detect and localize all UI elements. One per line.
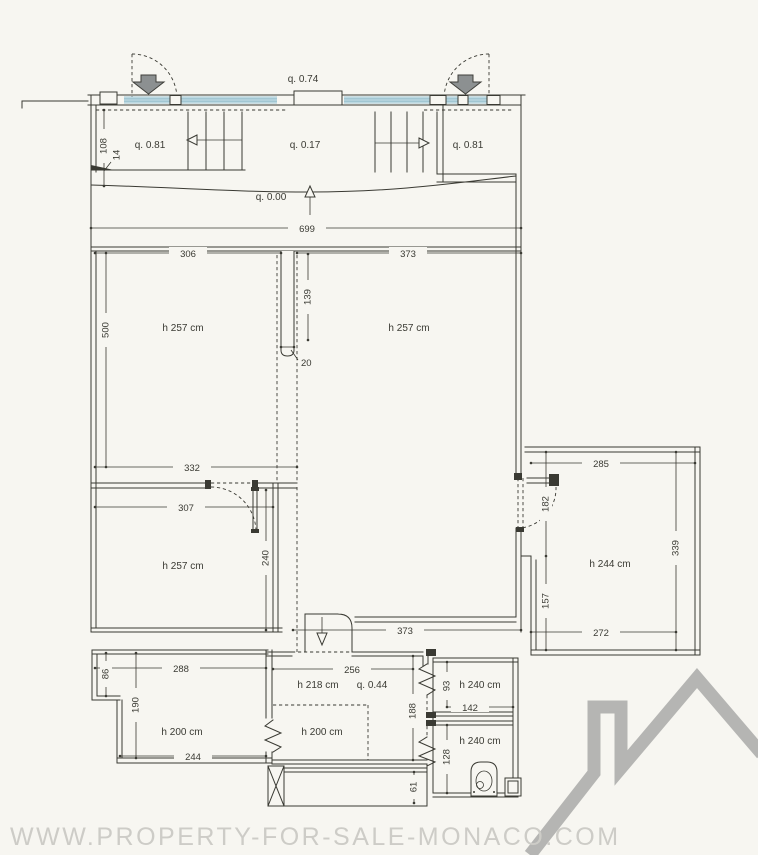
dim-128: 128 (442, 749, 453, 765)
room-bedroom-right: h 244 cm (589, 559, 630, 570)
dim-139: 139 (303, 289, 314, 305)
window-glazing (124, 97, 170, 104)
dim-182: 182 (541, 496, 552, 512)
dim-285: 285 (593, 459, 609, 470)
dim-86: 86 (101, 669, 112, 680)
pillar (281, 251, 294, 356)
room-bedroom-left: h 257 cm (162, 561, 203, 572)
room-lower-left: h 200 cm (161, 727, 202, 738)
window-glazing (468, 97, 487, 104)
dim-339: 339 (671, 540, 682, 556)
dim-373-top: 373 (400, 249, 416, 260)
dim-699: 699 (299, 224, 315, 235)
wall-fixture-icon (505, 778, 521, 796)
terrace-door-opening (294, 91, 342, 105)
dim-108: 108 (99, 138, 110, 154)
window-mullion (458, 96, 468, 105)
window-glazing (446, 97, 458, 104)
dim-14: 14 (112, 150, 123, 161)
dim-332: 332 (184, 463, 200, 474)
level-landing-right: q. 0.81 (453, 140, 484, 151)
room-living-right: h 257 cm (388, 323, 429, 334)
wall-pier (100, 92, 117, 104)
paper-background (0, 0, 758, 855)
dim-500: 500 (101, 322, 112, 338)
window-glazing (344, 97, 430, 104)
dim-244: 244 (185, 752, 201, 763)
window-glazing (181, 97, 277, 104)
floor-plan-canvas: 699 306 373 500 139 20 332 307 240 373 2… (0, 0, 758, 855)
dim-256: 256 (344, 665, 360, 676)
dim-240: 240 (261, 550, 272, 566)
dim-61: 61 (409, 782, 420, 793)
dim-20: 20 (301, 358, 312, 369)
level-terrace: q. 0.74 (288, 74, 319, 85)
dim-157: 157 (541, 593, 552, 609)
dim-190: 190 (131, 697, 142, 713)
level-landing-left: q. 0.81 (135, 140, 166, 151)
dim-142: 142 (462, 703, 478, 714)
level-main-floor: q. 0.00 (256, 192, 287, 203)
toilet-icon (471, 762, 497, 796)
room-lower-mid-upper: h 218 cm (297, 680, 338, 691)
level-entry: q. 0.17 (290, 140, 321, 151)
window-mullion (487, 96, 500, 105)
dim-307: 307 (178, 503, 194, 514)
dim-93: 93 (442, 681, 453, 692)
window-mullion (170, 96, 181, 105)
dim-373-bottom: 373 (397, 626, 413, 637)
dim-288: 288 (173, 664, 189, 675)
dim-188: 188 (408, 703, 419, 719)
dim-306: 306 (180, 249, 196, 260)
level-lower-zone: q. 0.44 (357, 680, 388, 691)
room-lower-mid: h 200 cm (301, 727, 342, 738)
dim-272: 272 (593, 628, 609, 639)
room-bath-upper: h 240 cm (459, 680, 500, 691)
window-mullion (430, 96, 446, 105)
room-living-left: h 257 cm (162, 323, 203, 334)
watermark-text: WWW.PROPERTY-FOR-SALE-MONACO.COM (10, 823, 621, 851)
room-bath-lower: h 240 cm (459, 736, 500, 747)
